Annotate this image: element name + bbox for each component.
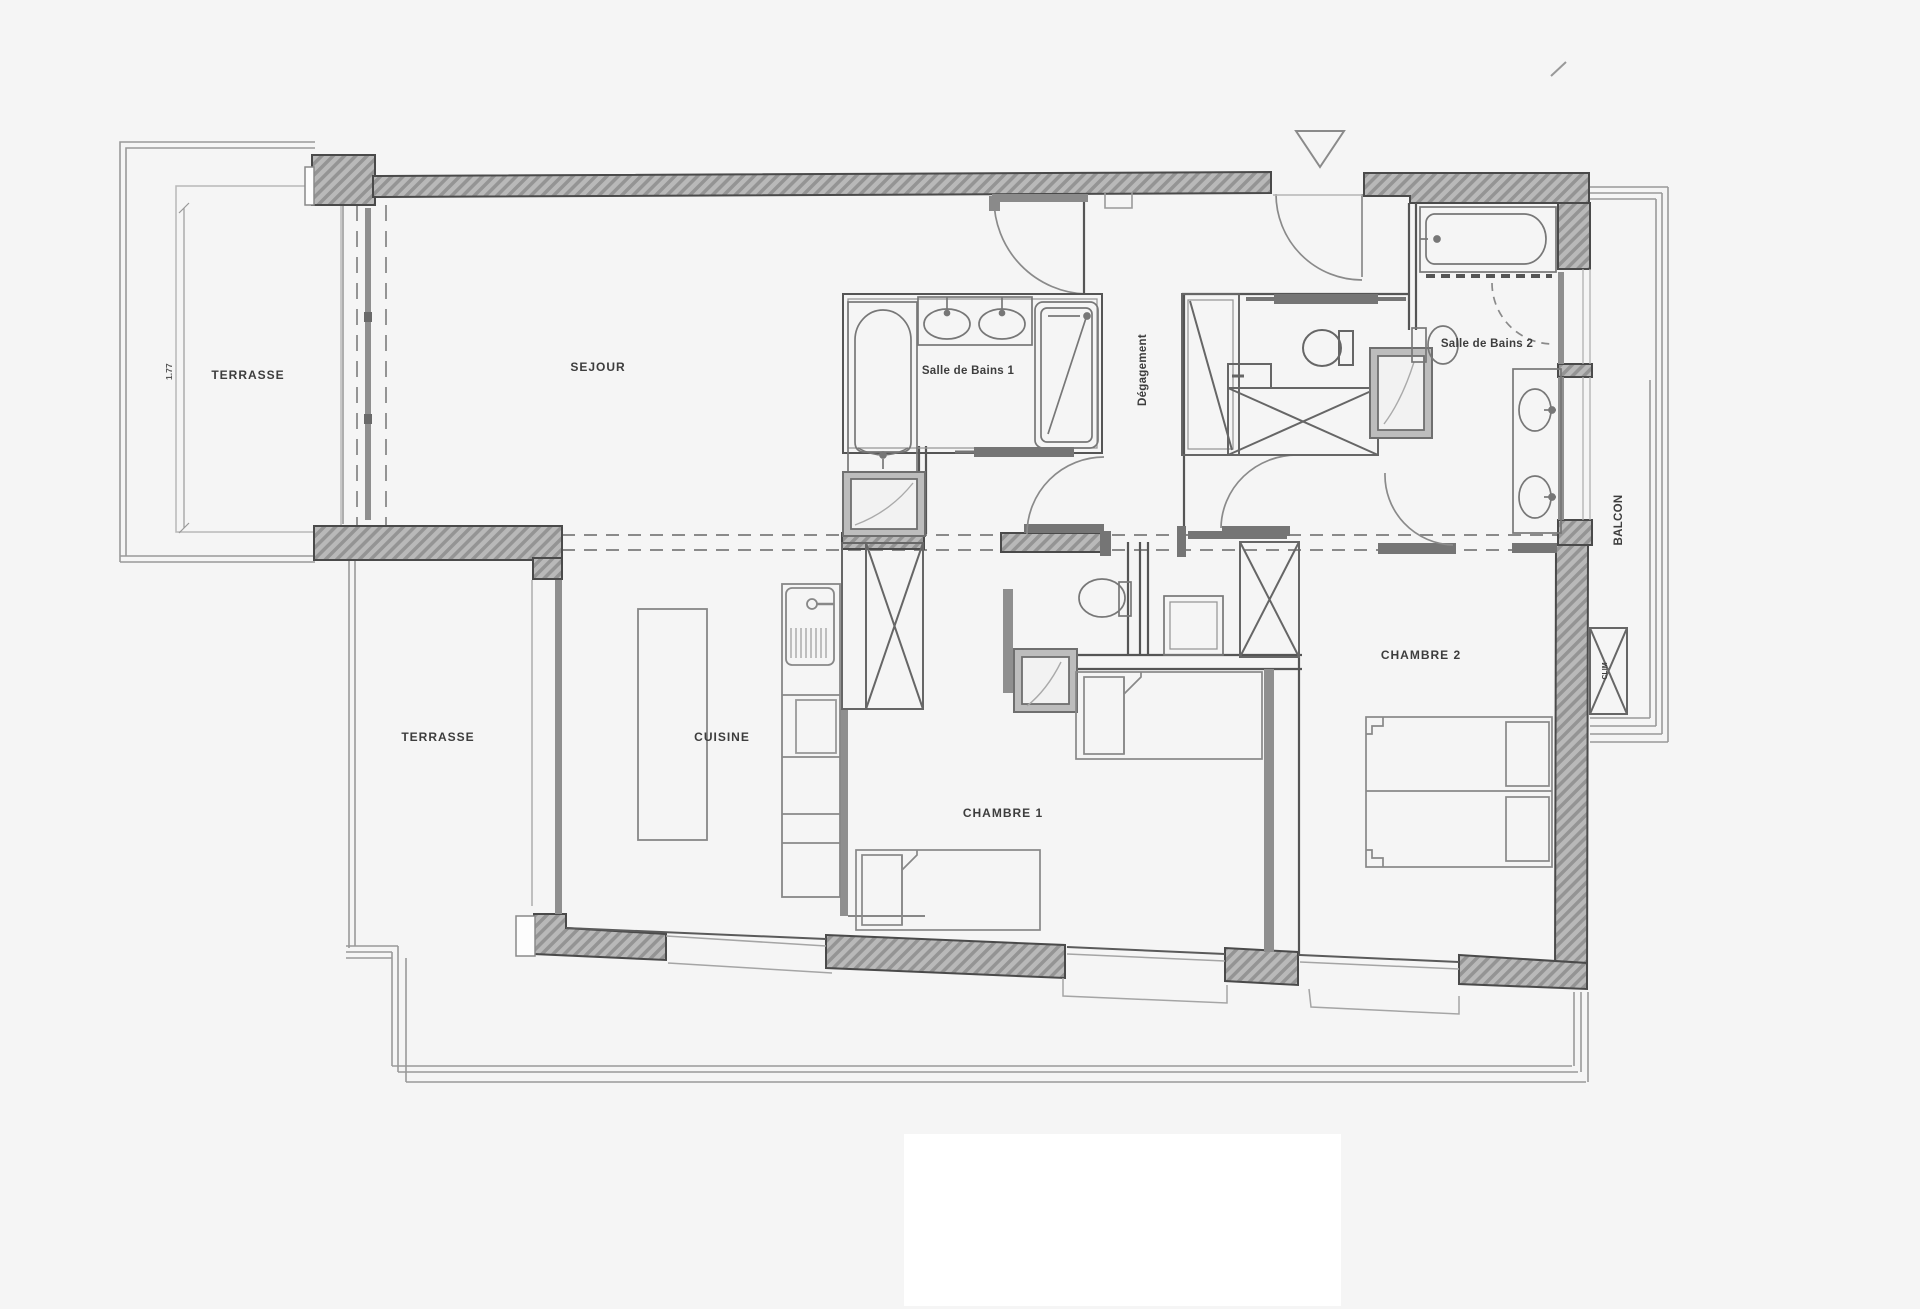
svg-text:Dégagement: Dégagement: [1137, 334, 1149, 406]
svg-text:TERRASSE: TERRASSE: [401, 730, 474, 744]
svg-text:CUISINE: CUISINE: [694, 730, 750, 744]
svg-text:TERRASSE: TERRASSE: [211, 368, 284, 382]
svg-text:BALCON: BALCON: [1613, 495, 1625, 546]
svg-text:Salle de Bains 1: Salle de Bains 1: [922, 365, 1015, 377]
svg-text:Salle de Bains 2: Salle de Bains 2: [1441, 338, 1533, 350]
svg-text:CHAMBRE 1: CHAMBRE 1: [963, 806, 1043, 820]
svg-text:SEJOUR: SEJOUR: [570, 360, 625, 374]
svg-text:CLIM: CLIM: [1602, 662, 1609, 679]
svg-text:1.77: 1.77: [164, 363, 174, 380]
svg-text:CHAMBRE 2: CHAMBRE 2: [1381, 648, 1461, 662]
